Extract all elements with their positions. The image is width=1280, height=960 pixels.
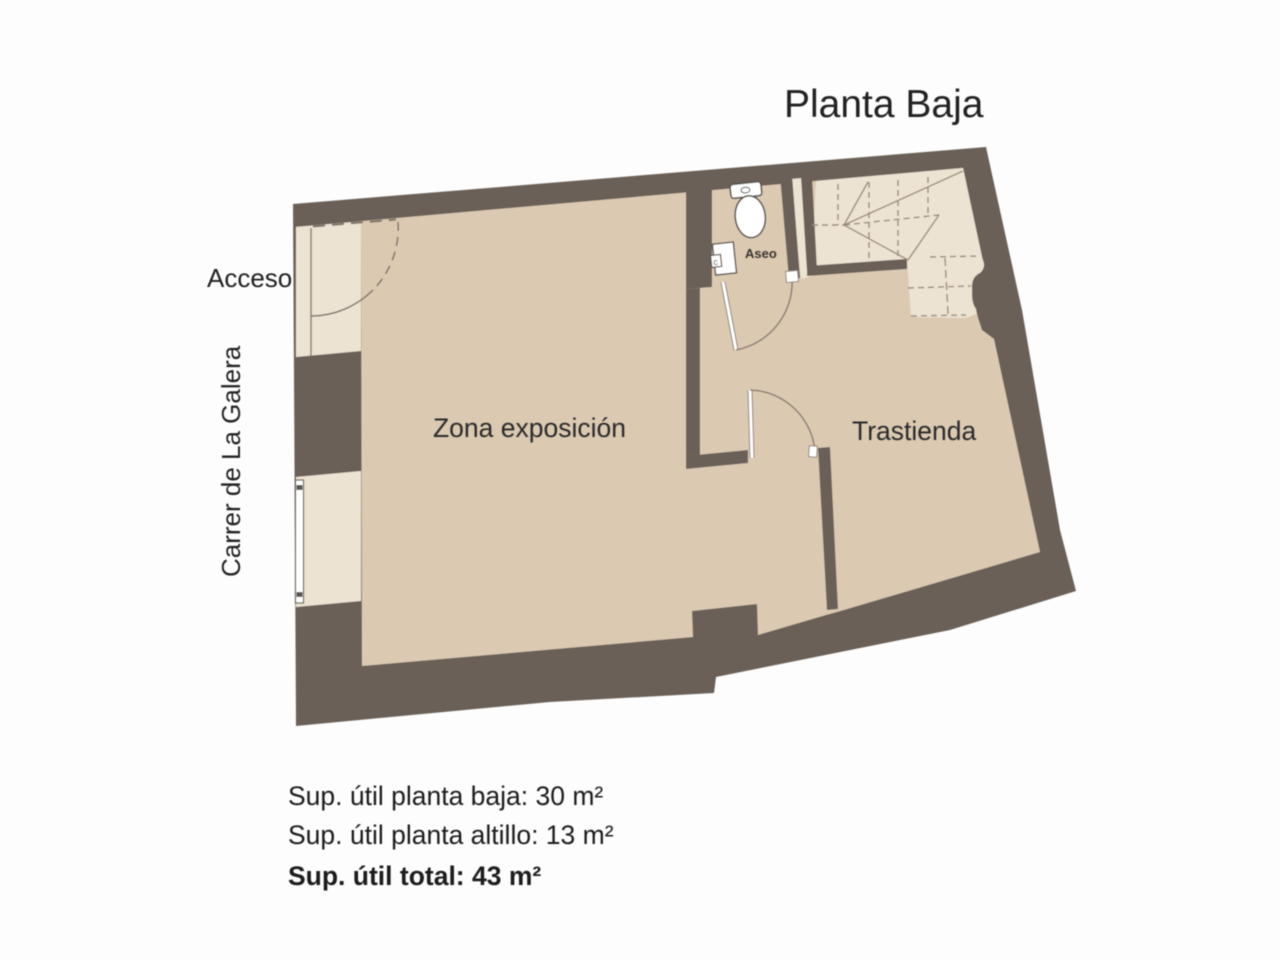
svg-text:Sup. útil total: 43 m²: Sup. útil total: 43 m² <box>288 861 541 891</box>
svg-text:Aseo: Aseo <box>745 246 777 261</box>
svg-text:Sup. útil planta baja: 30 m²: Sup. útil planta baja: 30 m² <box>288 781 603 811</box>
svg-text:Zona exposición: Zona exposición <box>433 413 626 443</box>
svg-text:Trastienda: Trastienda <box>852 416 976 446</box>
svg-text:Sup. útil planta altillo: 13 m: Sup. útil planta altillo: 13 m² <box>288 820 614 850</box>
svg-text:Carrer de La Galera: Carrer de La Galera <box>216 345 246 577</box>
svg-text:Planta Baja: Planta Baja <box>784 83 984 126</box>
svg-text:Acceso: Acceso <box>207 263 292 293</box>
